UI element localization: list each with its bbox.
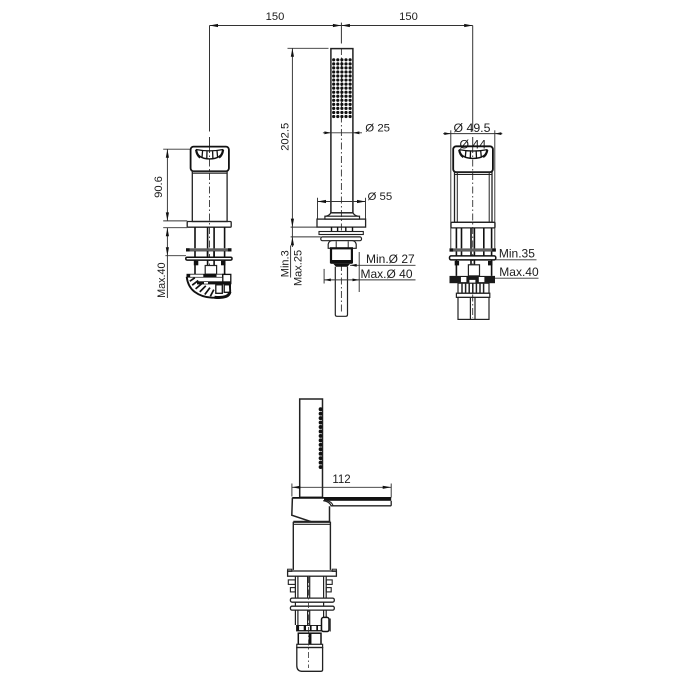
svg-text:Max.25: Max.25 (293, 250, 305, 286)
svg-text:Ø 49.5: Ø 49.5 (454, 121, 491, 135)
svg-text:112: 112 (332, 474, 350, 486)
svg-text:Min.35: Min.35 (499, 247, 535, 261)
svg-text:150: 150 (399, 11, 418, 23)
svg-text:Min.3: Min.3 (280, 250, 292, 277)
svg-text:150: 150 (266, 11, 285, 23)
svg-text:Ø 25: Ø 25 (365, 122, 390, 134)
svg-text:Min.Ø 27: Min.Ø 27 (366, 252, 415, 266)
svg-text:90.6: 90.6 (153, 176, 165, 198)
svg-text:Ø 44: Ø 44 (460, 137, 487, 151)
svg-text:202.5: 202.5 (279, 123, 291, 151)
svg-text:Max.Ø 40: Max.Ø 40 (361, 267, 413, 281)
svg-text:Max.40: Max.40 (499, 265, 539, 279)
svg-text:Ø 55: Ø 55 (368, 191, 393, 203)
svg-text:Max.40: Max.40 (156, 262, 168, 297)
